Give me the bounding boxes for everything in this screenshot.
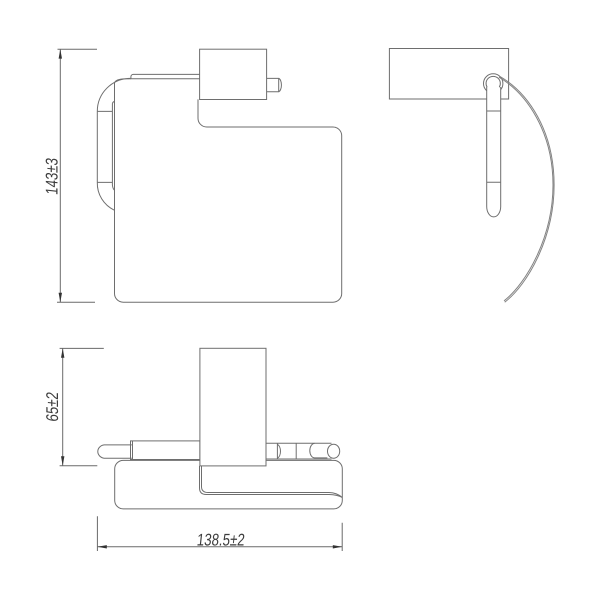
svg-text:138.5±2: 138.5±2 bbox=[196, 531, 246, 550]
svg-text:65±2: 65±2 bbox=[44, 391, 63, 422]
svg-text:143±3: 143±3 bbox=[43, 157, 62, 196]
